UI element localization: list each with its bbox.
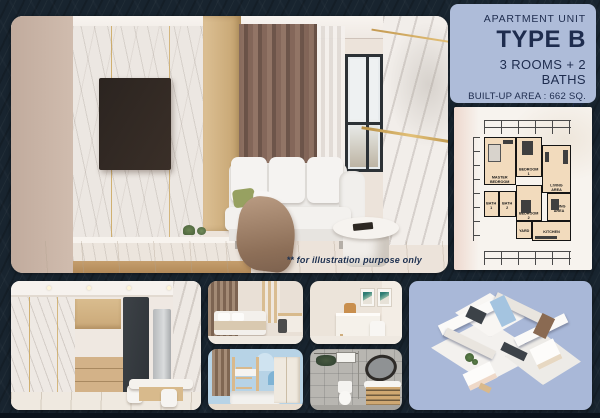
bedroom-photo <box>208 281 303 344</box>
cabinet-drawers <box>75 357 123 395</box>
dimension-line <box>484 127 571 134</box>
bathroom-photo <box>310 349 402 410</box>
unit-type-title: TYPE B <box>458 26 586 54</box>
floorplan-room-kitchen: KITCHEN <box>532 221 571 241</box>
shower-glass <box>358 351 359 399</box>
kitchen-photo <box>11 281 201 410</box>
floorplan-room-bedroom2: BEDROOM 2 <box>516 185 542 221</box>
iso-plant <box>472 359 478 365</box>
wardrobe <box>274 357 300 403</box>
apartment-flyer: ** for illustration purpose only APARTME… <box>0 0 600 418</box>
wall-art <box>360 288 375 307</box>
floorplan-room-living: LIVING AREA <box>542 145 571 193</box>
illustration-disclaimer: ** for illustration purpose only <box>287 255 422 265</box>
floorplan-room-bedroom1: BEDROOM 1 <box>516 137 542 177</box>
unit-info-panel: APARTMENT UNIT TYPE B 3 ROOMS + 2 BATHS … <box>450 4 596 103</box>
tv-screen <box>99 78 171 170</box>
upper-cabinet <box>75 299 121 329</box>
study-room-photo <box>310 281 402 344</box>
kids-room-photo <box>208 349 303 410</box>
hanging-plants <box>316 355 336 366</box>
side-wall <box>11 16 73 273</box>
wall-art <box>377 288 392 307</box>
dining-chair <box>161 389 177 407</box>
unit-subtitle: APARTMENT UNIT <box>458 13 586 25</box>
bathroom-window <box>336 352 356 363</box>
bunk-bed-lower <box>230 391 280 405</box>
marble-wall <box>11 281 75 410</box>
fridge <box>153 309 171 383</box>
dimension-line <box>484 258 571 265</box>
floorplan-room-bath1: BATH 1 <box>484 191 499 217</box>
rooms-baths-line: 3 ROOMS + 2 BATHS <box>458 57 586 87</box>
floorplan-room-master: MASTER BEDROOM <box>484 137 516 185</box>
dimension-line <box>484 120 571 127</box>
desk-chair <box>278 319 287 333</box>
wood-vanity <box>366 387 400 406</box>
floorplan-room-yard: YARD <box>516 221 532 239</box>
isometric-floorplan-photo <box>409 281 592 410</box>
floorplan-room-dining: DINING AREA <box>547 193 571 221</box>
floor-plan-drawing: MASTER BEDROOM BEDROOM 1 LIVING AREA BAT… <box>454 107 592 270</box>
living-room-photo: ** for illustration purpose only <box>11 16 448 273</box>
floorplan-room-bath2: BATH 2 <box>499 191 516 217</box>
round-mirror <box>362 352 399 385</box>
plant <box>183 225 195 235</box>
dimension-line <box>473 137 480 241</box>
curtain <box>212 349 230 396</box>
dimension-line <box>484 251 571 258</box>
plant <box>197 227 206 235</box>
